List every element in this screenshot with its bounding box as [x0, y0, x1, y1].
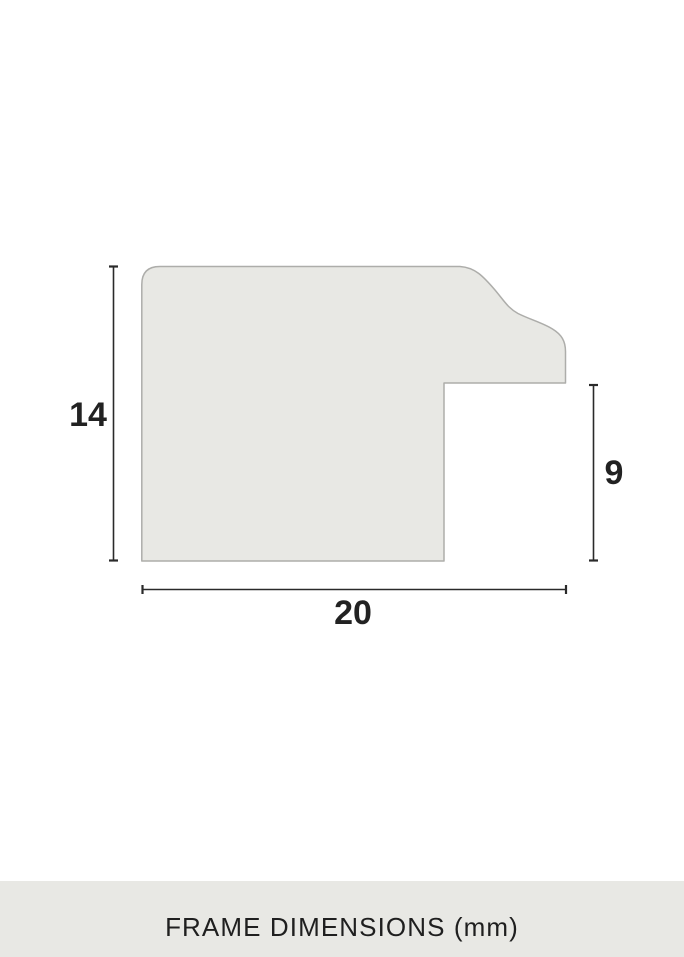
- svg-text:14: 14: [69, 396, 107, 434]
- svg-text:20: 20: [334, 594, 372, 632]
- svg-text:9: 9: [605, 454, 624, 492]
